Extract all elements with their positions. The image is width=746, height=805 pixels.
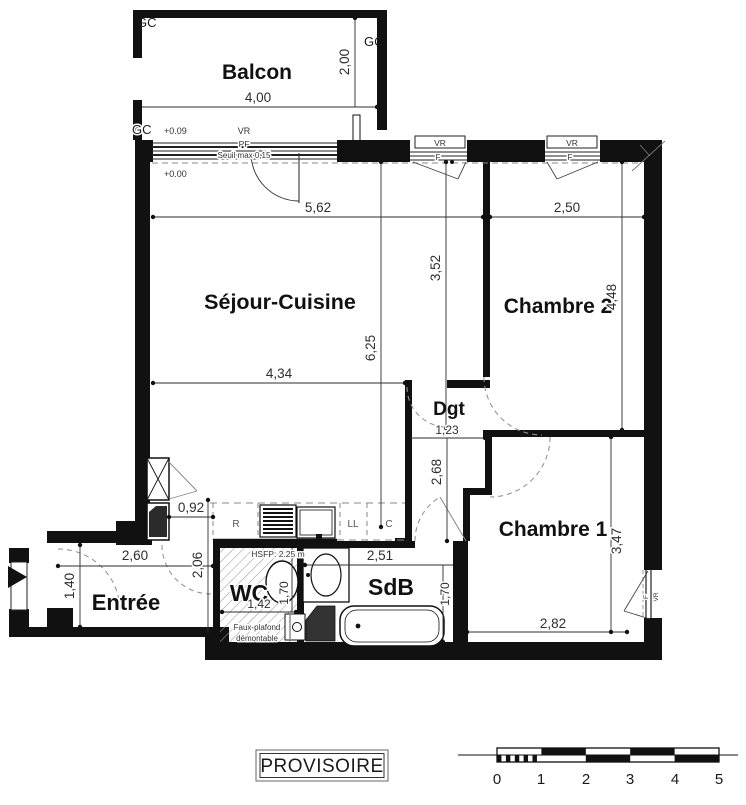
wall: [9, 609, 29, 637]
scale-tick-2: 2: [582, 771, 590, 788]
technical-shaft: [147, 458, 197, 500]
wall: [9, 548, 29, 563]
dim-sejour-width: 5,62: [305, 200, 331, 215]
dim-chambre2-height: 4,48: [604, 284, 619, 310]
chambre1-door-arc: [490, 437, 550, 497]
room-label-entree: Entrée: [92, 590, 160, 615]
level-floor: +0.00: [164, 169, 187, 179]
shutter-label-win1: VR: [434, 138, 446, 148]
dim-balcon-width: 4,00: [245, 90, 271, 105]
window-label-win1: F: [436, 153, 441, 162]
scale-tick-5: 5: [715, 771, 723, 788]
bathtub-faucet: [356, 624, 361, 629]
wall: [483, 430, 644, 437]
room-label-sdb: SdB: [368, 574, 414, 600]
dim-sdb-width: 2,51: [367, 548, 393, 563]
room-label-dgt: Dgt: [433, 399, 465, 420]
shutter-label-win2: VR: [566, 138, 578, 148]
washer-label: LL: [347, 519, 359, 530]
dim-passage-width: 0,92: [178, 500, 204, 515]
wall: [483, 162, 490, 377]
wall: [463, 494, 470, 541]
room-label-chambre2: Chambre 2: [504, 295, 613, 318]
scale-tick-1: 1: [537, 771, 545, 788]
dim-dgt-width: 1,23: [435, 423, 459, 437]
dim-wc-depth: 1,70: [277, 581, 291, 605]
dim-chambre1-width: 2,82: [540, 616, 566, 631]
ceiling-note-line2: démontable: [236, 634, 278, 643]
fridge-label: R: [232, 519, 239, 530]
status-stamp: PROVISOIRE: [256, 750, 388, 781]
wall: [133, 10, 387, 18]
sdb-door-arc: [415, 497, 440, 541]
dim-wc-width: 1,42: [247, 597, 271, 611]
room-label-balcon: Balcon: [222, 61, 292, 84]
boiler-column: [306, 606, 335, 641]
gc-label: GC: [364, 34, 384, 49]
dim-chambre1-height: 3,47: [609, 528, 624, 554]
closet-label: C: [385, 519, 392, 530]
dim-sdb-depth: 1,70: [438, 582, 452, 606]
balcony-door-arc: [251, 153, 299, 201]
chambre2-door-arc: [484, 377, 542, 435]
dim-sejour-lower-width: 4,34: [266, 366, 293, 381]
dim-entree-depth: 1,40: [62, 573, 77, 599]
wall: [213, 548, 220, 642]
wall: [29, 627, 213, 637]
gc-label: GC: [132, 122, 152, 137]
wall: [337, 140, 410, 162]
room-label-chambre1: Chambre 1: [499, 518, 608, 541]
wall: [453, 541, 468, 642]
scale-tick-0: 0: [493, 771, 501, 788]
floor-plan-drawing: GC GC GC Balcon 4,00 2,00 +0.09 VR PF Se…: [0, 0, 746, 800]
french-door-label: PF: [239, 139, 250, 149]
dim-sejour-height: 6,25: [363, 335, 378, 361]
wc-duct-box: [285, 614, 305, 640]
duct-box: [147, 503, 169, 540]
dim-entree-width: 2,60: [122, 548, 148, 563]
wall: [447, 380, 490, 388]
window-label-win2: F: [568, 153, 573, 162]
wall: [213, 541, 415, 548]
wall: [47, 531, 138, 543]
ceiling-note-line1: Faux-plafond: [234, 623, 281, 632]
room-label-sejour: Séjour-Cuisine: [204, 290, 356, 314]
dim-wc-outer-height: 2,06: [190, 552, 205, 578]
wall: [463, 488, 492, 495]
wall-stub: [353, 115, 360, 141]
gc-label: GC: [137, 15, 157, 30]
shutter-label-win3: VR: [653, 592, 660, 601]
scale-tick-4: 4: [671, 771, 679, 788]
washbasin-faucet: [306, 573, 310, 577]
cooktop: [260, 505, 296, 537]
wall: [395, 538, 405, 546]
window-label-win3: F: [643, 595, 650, 599]
level-balcony: +0.09: [164, 126, 187, 136]
scale-bar: 0 1 2 3 4 5: [458, 748, 738, 788]
shutter-label-pf: VR: [238, 126, 251, 136]
ceiling-height-note: HSFP: 2.25 m: [251, 549, 304, 559]
sdb-door-leaf: [440, 497, 466, 541]
faucet: [316, 534, 322, 546]
wall: [644, 140, 662, 568]
scale-tick-3: 3: [626, 771, 634, 788]
status-label: PROVISOIRE: [260, 756, 383, 777]
washbasin: [311, 554, 341, 596]
wall: [377, 13, 387, 130]
dim-sejour-mid-height: 3,52: [428, 255, 443, 281]
dim-balcon-depth: 2,00: [337, 49, 352, 75]
dim-dgt-height: 2,68: [429, 459, 444, 485]
dim-chambre2-width: 2,50: [554, 200, 580, 215]
floor-plan-page: GC GC GC Balcon 4,00 2,00 +0.09 VR PF Se…: [0, 0, 746, 800]
threshold-note: Seuil max 0,15: [218, 151, 271, 160]
wall: [467, 140, 545, 162]
